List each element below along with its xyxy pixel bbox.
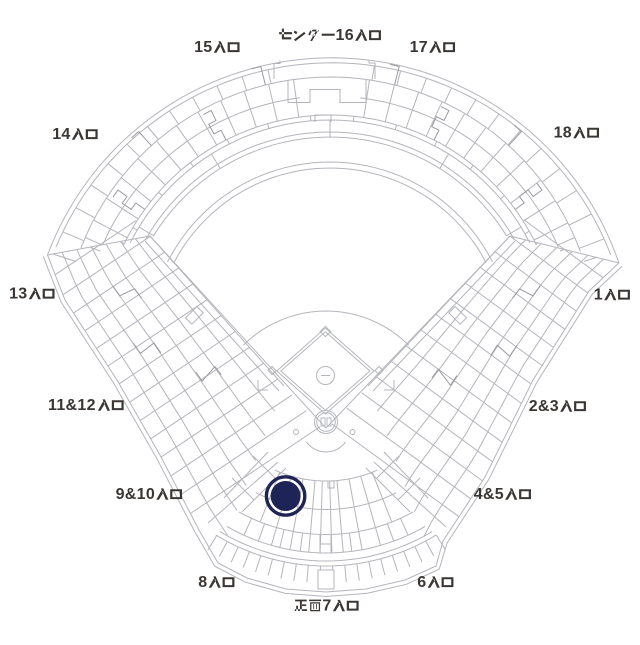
svg-text:11&12: 11&12 xyxy=(48,397,96,414)
svg-text:17: 17 xyxy=(410,39,428,56)
svg-text:16: 16 xyxy=(336,27,354,44)
svg-text:6: 6 xyxy=(417,574,426,591)
svg-text:18: 18 xyxy=(554,125,572,142)
svg-text:14: 14 xyxy=(52,126,70,143)
svg-text:4&5: 4&5 xyxy=(474,486,504,503)
svg-text:13: 13 xyxy=(9,286,27,303)
svg-text:7: 7 xyxy=(322,598,331,615)
svg-text:9&10: 9&10 xyxy=(116,486,155,503)
svg-text:2&3: 2&3 xyxy=(529,398,559,415)
svg-text:8: 8 xyxy=(198,574,207,591)
svg-text:1: 1 xyxy=(594,287,603,304)
svg-text:15: 15 xyxy=(194,39,212,56)
